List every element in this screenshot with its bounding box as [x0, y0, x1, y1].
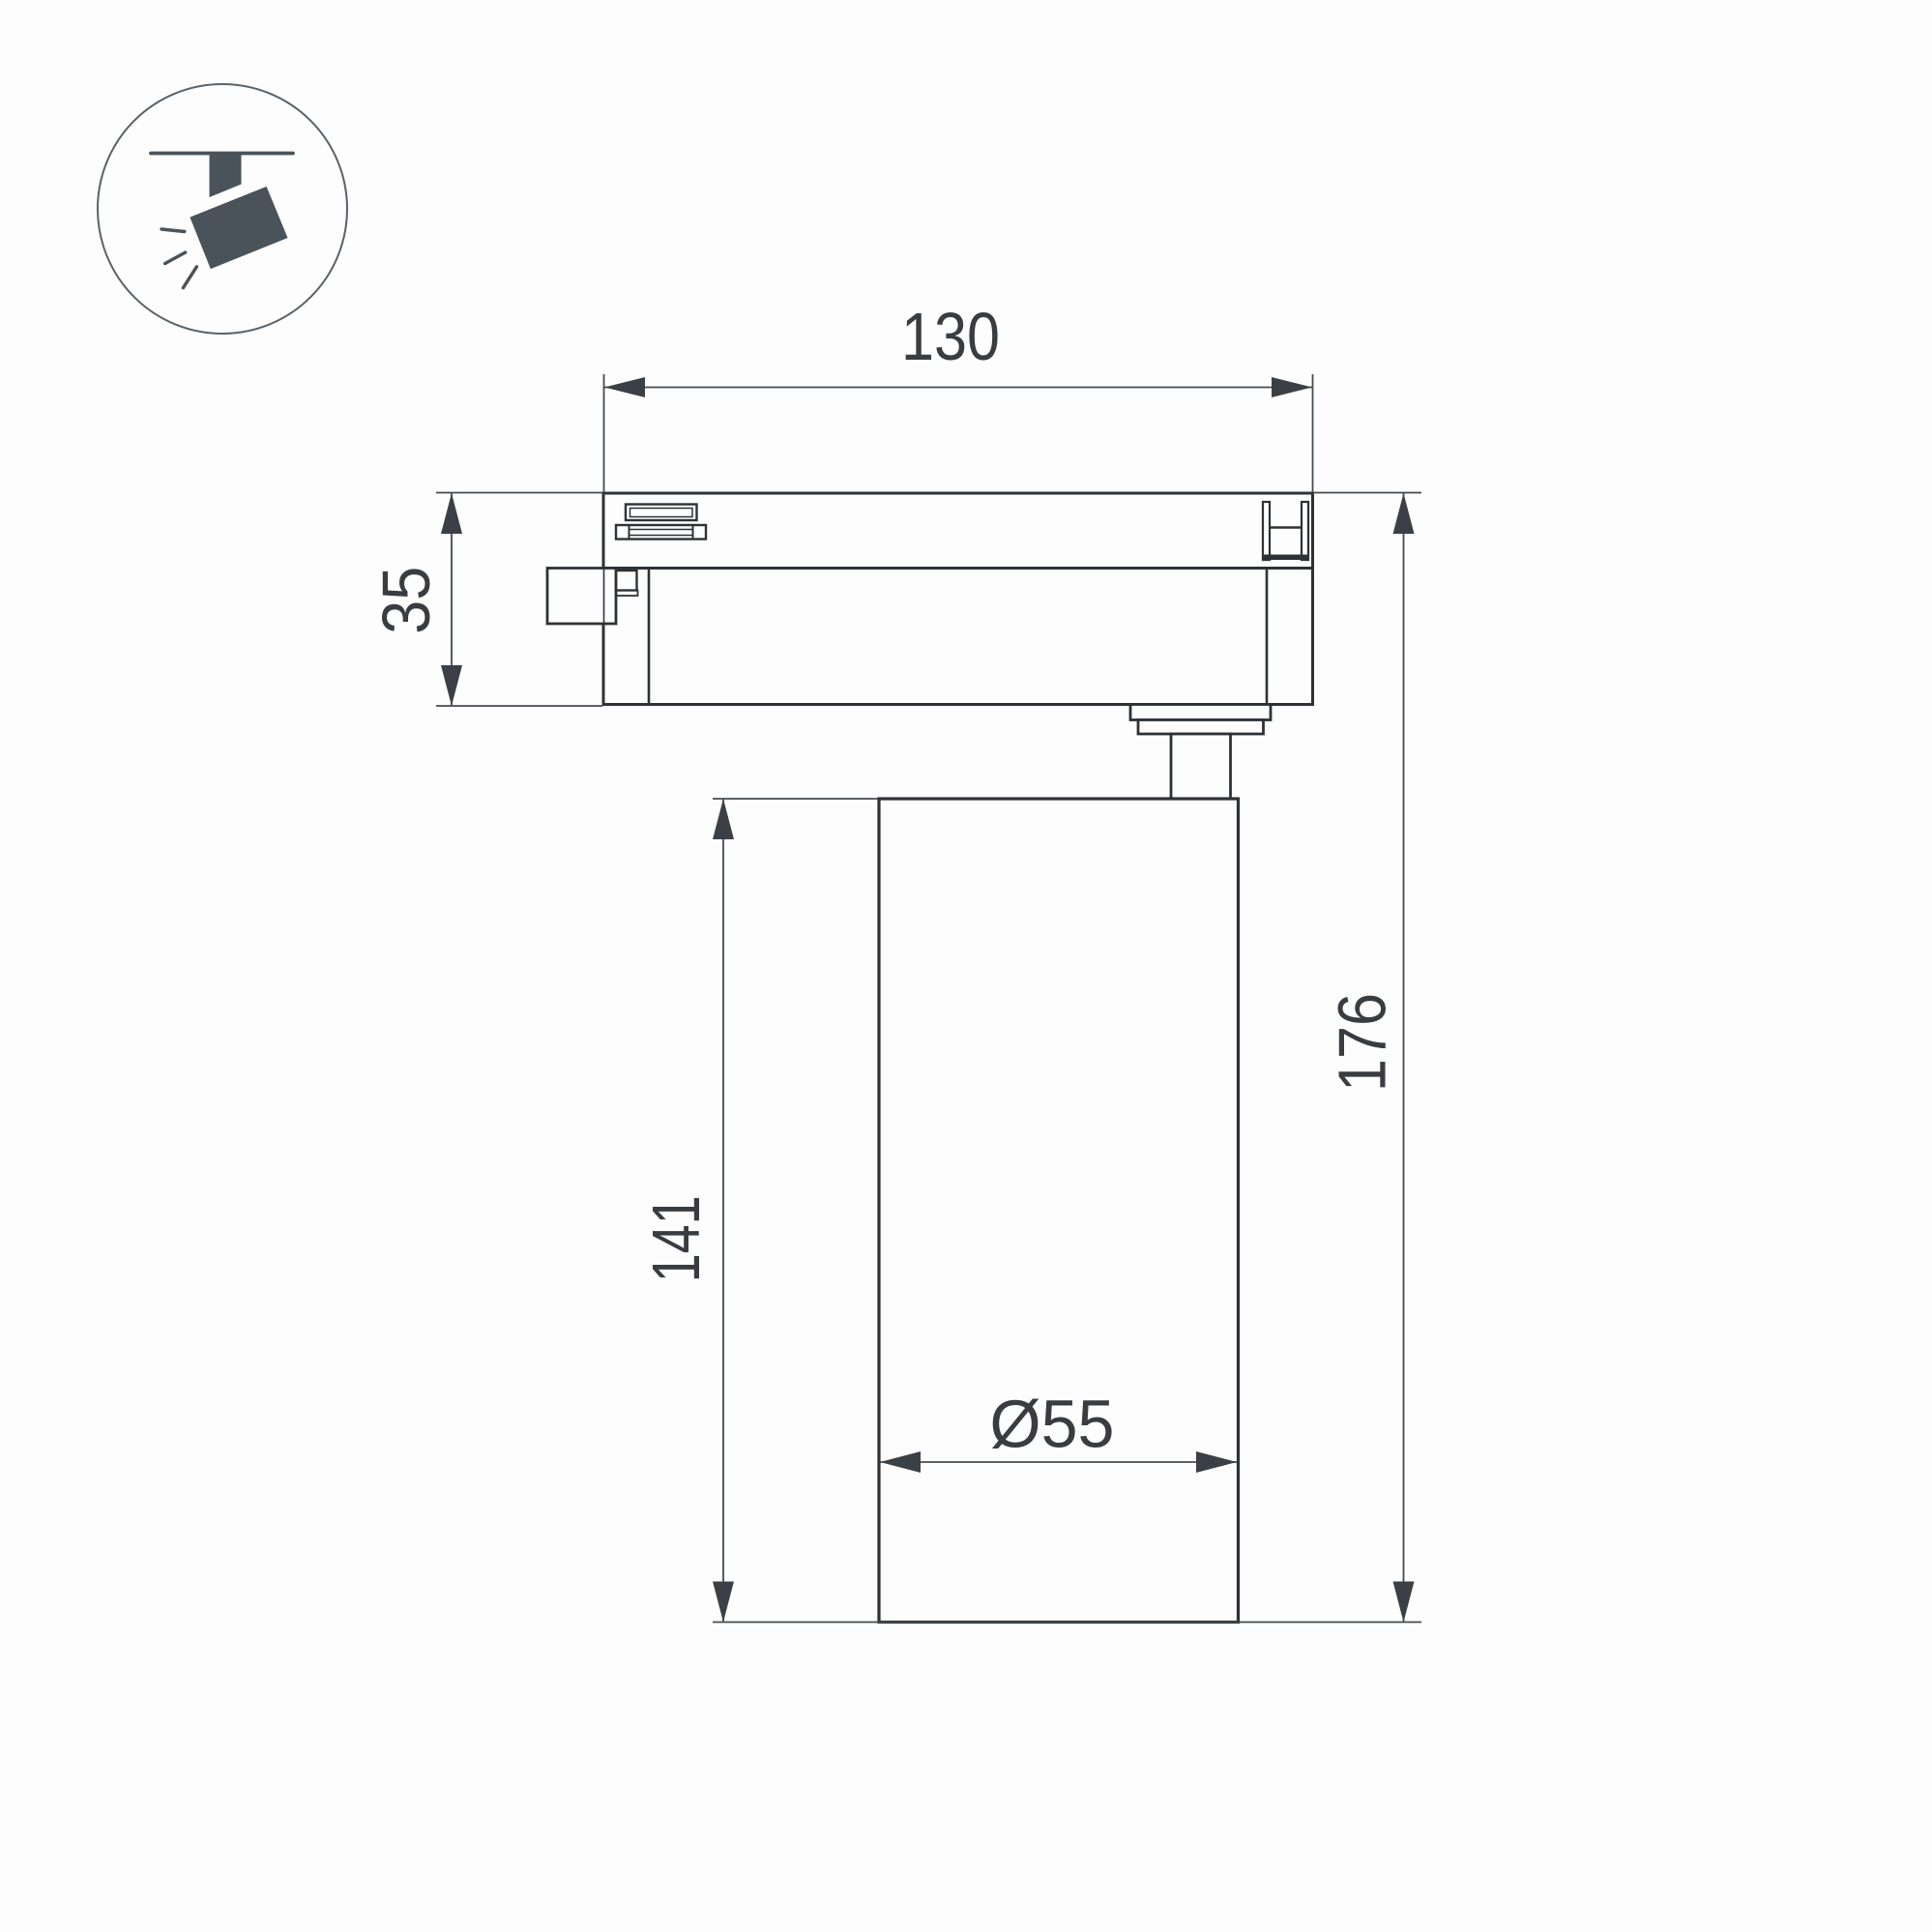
svg-text:35: 35 — [368, 567, 444, 634]
svg-text:176: 176 — [1325, 993, 1400, 1092]
svg-text:130: 130 — [901, 299, 1000, 374]
svg-text:Ø55: Ø55 — [990, 1387, 1115, 1462]
svg-text:141: 141 — [638, 1195, 714, 1282]
